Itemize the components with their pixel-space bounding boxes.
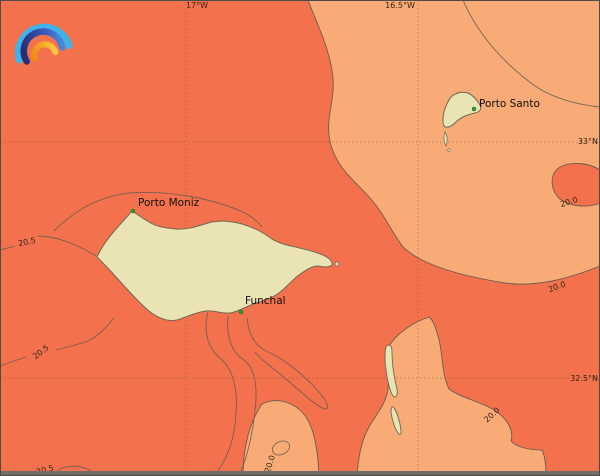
madeira-east-islet — [335, 262, 339, 266]
map-canvas — [0, 0, 600, 476]
sst-map: 17°W 16.5°W 33°N 32.5°N Porto Moniz Func… — [0, 0, 600, 476]
city-marker-porto-santo — [472, 107, 476, 111]
logo-inner-arc — [31, 42, 55, 58]
porto-santo-islet-small — [448, 149, 451, 152]
rainbow-arcs-logo — [8, 6, 86, 68]
city-marker-funchal — [239, 310, 243, 314]
city-marker-porto-moniz — [131, 209, 135, 213]
